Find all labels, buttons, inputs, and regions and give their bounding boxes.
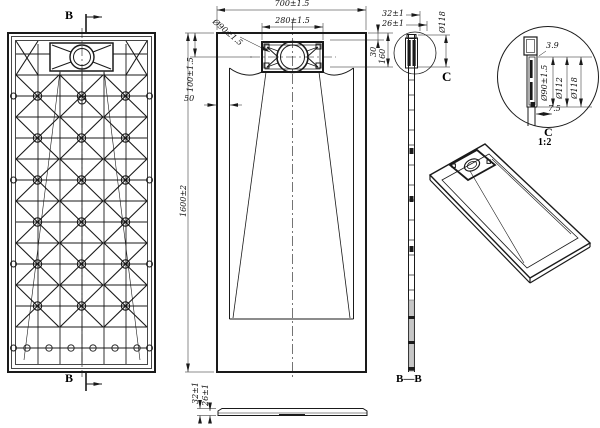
detail-c-marker: C: [442, 70, 451, 83]
dim-recess-start: 30: [370, 47, 378, 57]
drawing-sheet: B B 700±1.5 280±1.5 Ø90±1.5 100±1.5 50 1…: [0, 0, 600, 428]
dim-detail-drain: Ø90±1.5: [541, 65, 549, 101]
drawing-linework: [0, 0, 600, 428]
dim-flange-diameter: Ø118: [439, 11, 447, 33]
dim-length: 1600±2: [180, 185, 188, 217]
bottom-view-drawing: [8, 14, 155, 391]
detail-c-scale: 1:2: [538, 138, 551, 148]
profile-view-drawing: [197, 401, 367, 423]
dim-detail-flange: Ø118: [571, 77, 579, 99]
top-view-drawing: [185, 6, 393, 380]
dim-drain-width: 280±1.5: [262, 17, 323, 25]
dim-section-height-total: 32±1: [378, 10, 404, 18]
section-b-label-bottom: B: [65, 372, 73, 384]
dim-recess-end: 160: [379, 49, 387, 64]
dim-edge-offset: 50: [184, 95, 194, 103]
dim-profile-height-base: 26±1: [202, 384, 210, 406]
dim-section-height-base: 26±1: [378, 20, 404, 28]
dim-profile-height-total: 32±1: [192, 382, 200, 404]
dim-width: 700±1.5: [254, 0, 330, 8]
dim-detail-edge: 7.5: [548, 105, 561, 113]
dim-detail-ring: Ø112: [556, 77, 564, 99]
section-b-label-top: B: [65, 9, 73, 21]
dim-lip-thickness: 3.9: [546, 42, 559, 50]
perspective-view-drawing: [430, 144, 590, 283]
dim-drain-offset: 100±1.5: [187, 57, 195, 92]
section-bb-title: B—B: [396, 374, 422, 385]
